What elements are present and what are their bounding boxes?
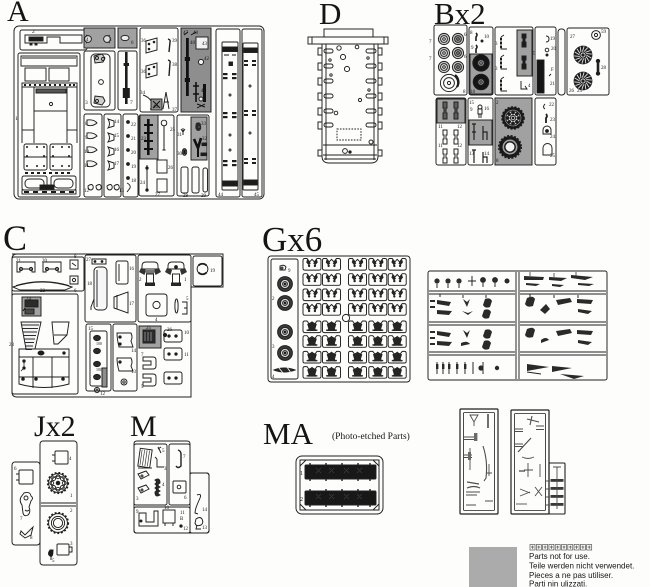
- svg-text:12: 12: [100, 392, 106, 397]
- svg-text:7: 7: [130, 100, 133, 106]
- svg-text:19: 19: [210, 269, 216, 274]
- svg-text:16: 16: [129, 267, 135, 272]
- svg-text:3: 3: [70, 542, 73, 547]
- svg-text:59: 59: [601, 30, 607, 35]
- svg-text:Parts not for use.: Parts not for use.: [529, 552, 590, 561]
- svg-text:39: 39: [172, 39, 178, 44]
- svg-text:10: 10: [184, 331, 190, 336]
- svg-text:1: 1: [70, 494, 73, 499]
- svg-text:34: 34: [140, 91, 146, 96]
- svg-text:26: 26: [167, 328, 173, 333]
- svg-text:42: 42: [204, 57, 210, 62]
- svg-text:37: 37: [172, 108, 178, 113]
- svg-text:2: 2: [139, 278, 142, 283]
- svg-text:Gx6: Gx6: [262, 220, 322, 259]
- svg-text:7: 7: [20, 517, 23, 522]
- svg-text:14: 14: [484, 152, 490, 157]
- svg-text:18: 18: [470, 90, 476, 95]
- svg-text:24: 24: [550, 135, 556, 140]
- svg-text:26: 26: [168, 166, 174, 171]
- svg-text:38: 38: [172, 63, 178, 68]
- svg-text:31: 31: [177, 133, 183, 138]
- svg-text:20: 20: [131, 151, 137, 156]
- svg-text:25: 25: [170, 128, 176, 133]
- svg-text:32: 32: [202, 137, 208, 142]
- svg-text:13: 13: [119, 189, 125, 194]
- svg-text:10: 10: [484, 35, 490, 40]
- svg-text:Teile werden nicht verwendet.: Teile werden nicht verwendet.: [529, 562, 634, 571]
- svg-text:2: 2: [272, 297, 275, 302]
- svg-text:8: 8: [74, 255, 77, 260]
- svg-text:24: 24: [140, 181, 146, 186]
- svg-text:7: 7: [183, 455, 186, 460]
- svg-text:41: 41: [201, 89, 207, 94]
- svg-text:6: 6: [184, 496, 187, 501]
- svg-text:17: 17: [114, 162, 120, 167]
- svg-text:5: 5: [162, 449, 165, 454]
- svg-text:7: 7: [429, 40, 432, 45]
- svg-text:16: 16: [114, 148, 120, 153]
- svg-text:9: 9: [470, 108, 473, 113]
- svg-text:12: 12: [457, 144, 463, 149]
- svg-text:18: 18: [131, 179, 137, 184]
- svg-text:36: 36: [141, 70, 147, 75]
- svg-text:11: 11: [84, 164, 89, 169]
- svg-text:29: 29: [201, 194, 207, 199]
- svg-text:3: 3: [85, 100, 88, 106]
- svg-text:100: 100: [96, 367, 102, 372]
- svg-text:26: 26: [569, 89, 575, 94]
- svg-text:100: 100: [96, 341, 102, 346]
- svg-text:12: 12: [457, 125, 463, 130]
- svg-text:28: 28: [183, 194, 189, 199]
- svg-text:2: 2: [300, 497, 303, 503]
- svg-text:11: 11: [438, 144, 443, 149]
- svg-text:2: 2: [32, 29, 35, 35]
- svg-text:17: 17: [129, 302, 135, 307]
- svg-text:14: 14: [114, 120, 120, 125]
- svg-text:21: 21: [16, 259, 22, 264]
- svg-text:25: 25: [146, 326, 152, 331]
- svg-text:12: 12: [183, 527, 189, 532]
- svg-text:1: 1: [300, 471, 303, 477]
- svg-text:20: 20: [551, 47, 557, 52]
- svg-text:D: D: [319, 0, 341, 31]
- svg-text:4: 4: [528, 84, 531, 89]
- svg-text:13: 13: [131, 370, 137, 375]
- svg-text:8: 8: [30, 536, 33, 541]
- svg-text:20: 20: [42, 259, 48, 264]
- svg-text:5: 5: [186, 297, 189, 302]
- svg-text:22: 22: [40, 289, 46, 294]
- svg-text:3: 3: [495, 42, 498, 47]
- svg-text:14: 14: [202, 508, 208, 513]
- svg-text:B: B: [180, 517, 184, 522]
- svg-text:30: 30: [177, 152, 183, 157]
- svg-text:23: 23: [550, 118, 556, 123]
- svg-text:8: 8: [463, 90, 466, 95]
- svg-text:22: 22: [549, 103, 555, 108]
- svg-text:3: 3: [495, 67, 498, 72]
- svg-text:25: 25: [550, 154, 556, 159]
- svg-text:14: 14: [131, 349, 137, 354]
- svg-text:M: M: [130, 410, 157, 443]
- svg-text:21: 21: [550, 82, 556, 87]
- svg-text:3: 3: [136, 497, 139, 502]
- svg-text:19: 19: [131, 165, 137, 170]
- svg-text:8: 8: [470, 31, 473, 36]
- svg-text:11: 11: [184, 353, 189, 358]
- svg-text:28: 28: [601, 66, 607, 71]
- svg-text:33: 33: [201, 122, 207, 127]
- svg-text:27: 27: [86, 258, 92, 263]
- svg-text:2: 2: [70, 509, 73, 514]
- svg-text:12: 12: [84, 189, 90, 194]
- svg-text:15: 15: [469, 101, 475, 106]
- svg-text:11: 11: [180, 511, 185, 516]
- svg-text:44: 44: [218, 193, 224, 198]
- svg-text:9: 9: [471, 46, 474, 51]
- svg-text:5: 5: [52, 559, 55, 564]
- svg-text:11: 11: [438, 125, 443, 130]
- svg-text:23: 23: [9, 343, 15, 348]
- svg-text:7: 7: [429, 57, 432, 62]
- svg-text:4: 4: [69, 457, 72, 462]
- svg-text:19: 19: [550, 37, 556, 42]
- svg-text:Jx2: Jx2: [34, 410, 76, 443]
- svg-text:36: 36: [141, 39, 147, 44]
- svg-text:15: 15: [114, 134, 120, 139]
- svg-text:13: 13: [202, 526, 208, 531]
- svg-text:5: 5: [533, 52, 536, 57]
- svg-text:10: 10: [84, 150, 90, 155]
- svg-text:3: 3: [272, 345, 275, 350]
- svg-text:46: 46: [153, 105, 159, 110]
- svg-text:16: 16: [484, 107, 490, 112]
- svg-text:Parti nin ulizzati.: Parti nin ulizzati.: [529, 580, 587, 587]
- svg-text:25: 25: [577, 89, 583, 94]
- svg-text:MA: MA: [263, 416, 314, 451]
- svg-text:21: 21: [131, 137, 137, 142]
- svg-text:10: 10: [164, 506, 170, 511]
- svg-text:6: 6: [14, 467, 17, 472]
- svg-text:Bx2: Bx2: [434, 0, 486, 31]
- svg-text:F: F: [551, 68, 554, 73]
- svg-text:1: 1: [184, 278, 187, 283]
- svg-text:4: 4: [162, 483, 165, 488]
- svg-text:A: A: [7, 0, 29, 28]
- svg-text:C: C: [3, 218, 27, 258]
- svg-text:40: 40: [190, 41, 196, 46]
- svg-text:45: 45: [254, 193, 260, 198]
- svg-text:1: 1: [15, 116, 18, 122]
- svg-text:24: 24: [26, 297, 32, 302]
- svg-text:9: 9: [288, 269, 291, 274]
- svg-text:(Photo-etched Parts): (Photo-etched Parts): [332, 431, 410, 442]
- svg-text:22: 22: [131, 123, 137, 128]
- svg-text:43: 43: [202, 42, 208, 47]
- svg-text:18: 18: [87, 282, 93, 287]
- svg-text:27: 27: [155, 193, 161, 198]
- svg-text:27: 27: [570, 35, 576, 40]
- svg-text:6: 6: [74, 289, 77, 294]
- svg-text:23: 23: [141, 137, 147, 142]
